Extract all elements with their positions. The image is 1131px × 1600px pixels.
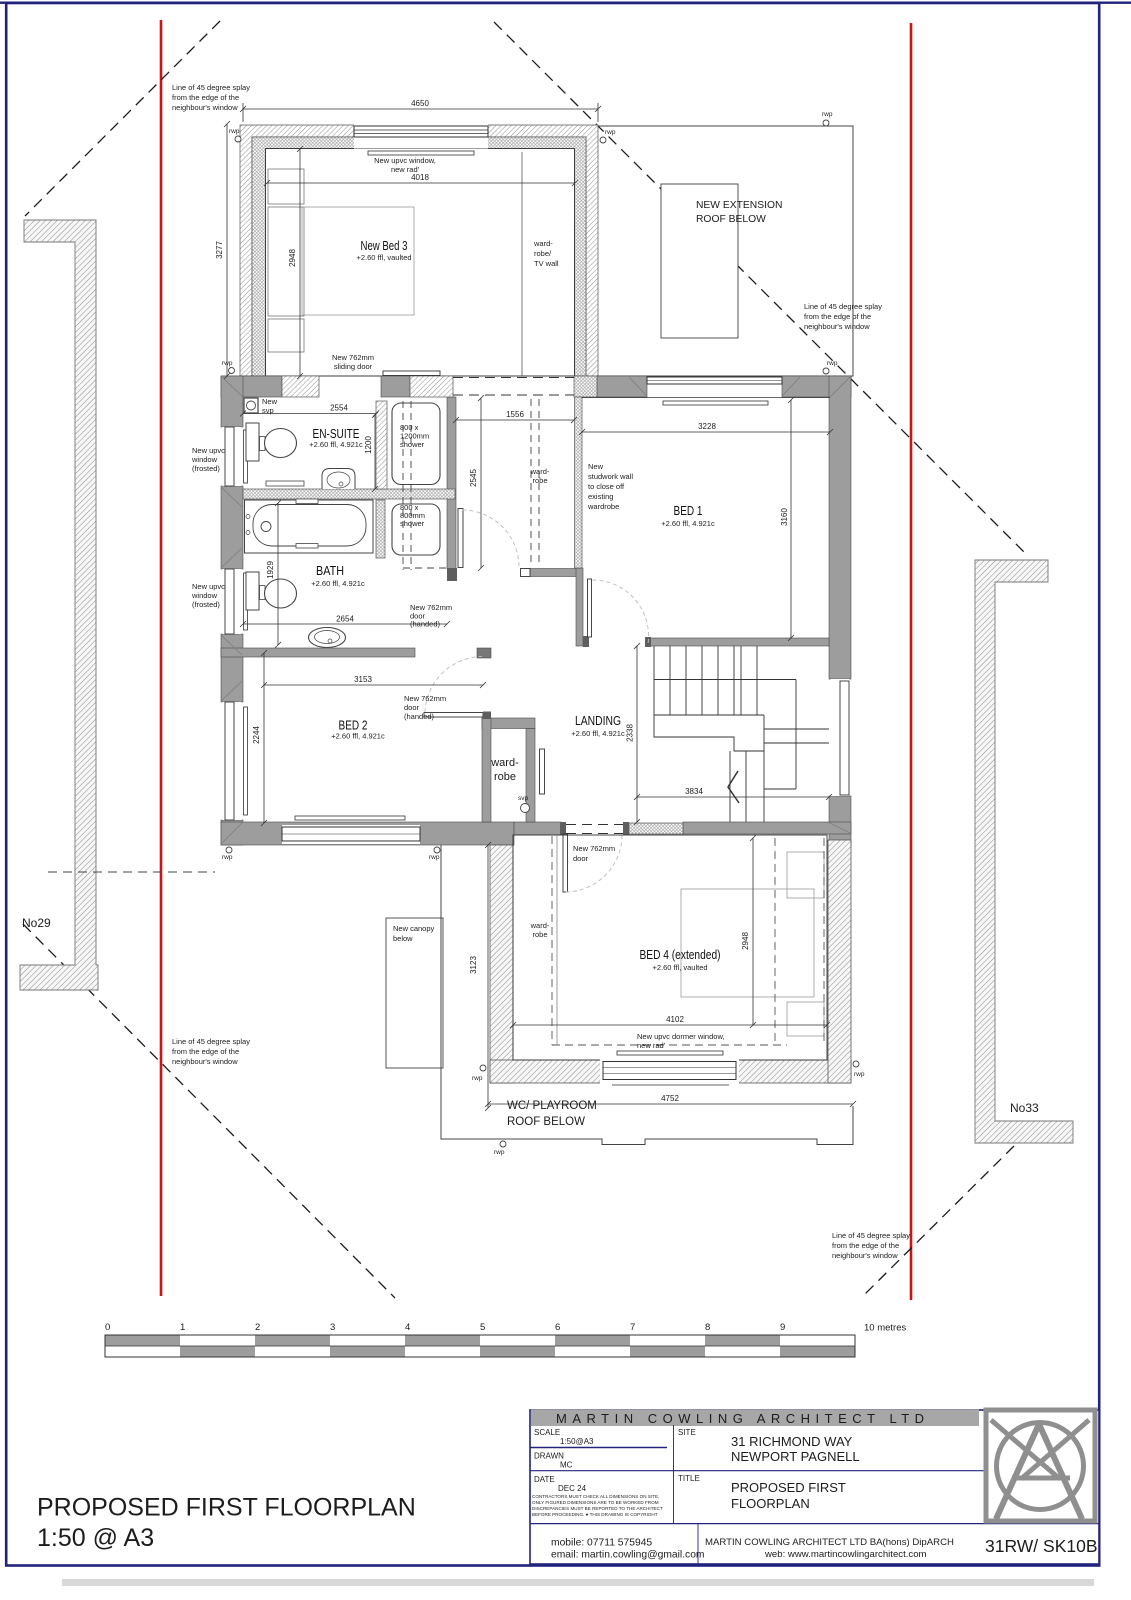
- svg-text:3: 3: [330, 1322, 335, 1333]
- svg-text:+2.60 ffl, 4.921c: +2.60 ffl, 4.921c: [331, 732, 385, 741]
- svg-text:No33: No33: [1010, 1101, 1039, 1115]
- svg-text:new rad': new rad': [637, 1041, 666, 1050]
- svg-text:(frosted): (frosted): [192, 464, 220, 473]
- svg-text:3160: 3160: [780, 508, 789, 526]
- svg-text:New Bed 3: New Bed 3: [361, 239, 408, 253]
- svg-text:New upvc: New upvc: [192, 582, 225, 591]
- svg-text:rwp: rwp: [222, 854, 233, 861]
- svg-text:rwp: rwp: [494, 1149, 505, 1156]
- svg-text:6: 6: [555, 1322, 560, 1333]
- svg-text:email: martin.cowling@gmail.c: email: martin.cowling@gmail.com: [551, 1550, 705, 1561]
- svg-text:No29: No29: [22, 916, 51, 930]
- svg-text:+2.60 ffl, 4.921c: +2.60 ffl, 4.921c: [661, 519, 715, 528]
- svg-text:robe/: robe/: [534, 249, 552, 258]
- svg-text:5: 5: [480, 1322, 485, 1333]
- svg-text:SCALE: SCALE: [534, 1428, 560, 1437]
- svg-text:PROPOSED FIRST: PROPOSED FIRST: [731, 1480, 846, 1495]
- svg-text:2: 2: [255, 1322, 260, 1333]
- svg-text:+2.60 ffl, vaulted: +2.60 ffl, vaulted: [356, 253, 411, 262]
- svg-text:New canopy: New canopy: [393, 924, 435, 933]
- svg-text:1:50 @ A3: 1:50 @ A3: [37, 1524, 154, 1552]
- svg-text:window: window: [191, 591, 218, 600]
- svg-text:ward-: ward-: [530, 467, 550, 476]
- svg-text:shower: shower: [400, 440, 425, 449]
- svg-text:4018: 4018: [411, 173, 429, 182]
- svg-text:4102: 4102: [666, 1015, 684, 1024]
- svg-text:BED 1: BED 1: [674, 504, 703, 518]
- svg-text:BATH: BATH: [316, 564, 344, 578]
- svg-text:1200: 1200: [364, 436, 373, 454]
- svg-text:3228: 3228: [698, 422, 716, 431]
- svg-text:Line of 45 degree splay: Line of 45 degree splay: [172, 1037, 250, 1046]
- svg-text:robe: robe: [532, 930, 547, 939]
- svg-text:window: window: [191, 455, 218, 464]
- svg-text:2545: 2545: [469, 469, 478, 487]
- svg-text:TV wall: TV wall: [534, 259, 559, 268]
- svg-text:(frosted): (frosted): [192, 600, 220, 609]
- svg-text:DRAWN: DRAWN: [534, 1452, 564, 1461]
- svg-text:(handed): (handed): [410, 620, 441, 629]
- svg-text:BED 4 (extended): BED 4 (extended): [640, 948, 721, 962]
- svg-text:New 762mm: New 762mm: [404, 694, 446, 703]
- svg-text:+2.60 ffl, vaulted: +2.60 ffl, vaulted: [652, 963, 707, 972]
- svg-text:New 762mm: New 762mm: [332, 353, 374, 362]
- svg-text:BEFORE PROCEEDING. ● THIS DRA: BEFORE PROCEEDING. ● THIS DRAWING IS COP…: [532, 1512, 658, 1517]
- svg-text:New: New: [588, 462, 604, 471]
- svg-text:sliding door: sliding door: [334, 362, 373, 371]
- svg-text:BED 2: BED 2: [339, 719, 368, 733]
- svg-text:2948: 2948: [288, 249, 297, 267]
- svg-text:SITE: SITE: [678, 1428, 696, 1437]
- svg-text:from the edge of the: from the edge of the: [172, 1047, 239, 1056]
- svg-text:9: 9: [780, 1322, 785, 1333]
- svg-text:to close off: to close off: [588, 482, 625, 491]
- svg-text:ward-: ward-: [490, 757, 519, 769]
- svg-text:Line of 45 degree splay: Line of 45 degree splay: [832, 1231, 910, 1240]
- svg-text:(handed): (handed): [404, 712, 435, 721]
- svg-text:ward-: ward-: [533, 239, 553, 248]
- svg-text:svp: svp: [518, 795, 529, 802]
- svg-text:ONLY FIGURED DIMENSIONS ARE TO: ONLY FIGURED DIMENSIONS ARE TO BE WORKED…: [532, 1500, 659, 1505]
- svg-text:MARTIN COWLING ARCHITECT LTD: MARTIN COWLING ARCHITECT LTD: [556, 1411, 930, 1426]
- svg-text:2948: 2948: [741, 932, 750, 950]
- svg-text:neighbour's window: neighbour's window: [804, 322, 870, 331]
- svg-text:New: New: [262, 397, 278, 406]
- svg-text:MC: MC: [560, 1461, 573, 1470]
- svg-text:New 762mm: New 762mm: [573, 844, 615, 853]
- svg-text:rwp: rwp: [222, 360, 233, 367]
- svg-text:web: www.martincowlingarchitec: web: www.martincowlingarchitect.com: [764, 1549, 927, 1560]
- svg-text:LANDING: LANDING: [575, 714, 621, 728]
- svg-text:2554: 2554: [330, 404, 348, 413]
- svg-text:from the edge of the: from the edge of the: [172, 93, 239, 102]
- svg-text:CONTRACTORS MUST CHECK ALL DIM: CONTRACTORS MUST CHECK ALL DIMENSIONS ON…: [532, 1494, 659, 1499]
- svg-text:0: 0: [105, 1322, 110, 1333]
- svg-text:door: door: [404, 703, 420, 712]
- svg-text:DISCREPANCIES MUST BE REPORTED: DISCREPANCIES MUST BE REPORTED TO THE AR…: [532, 1506, 663, 1511]
- svg-text:4650: 4650: [411, 99, 429, 108]
- svg-text:neighbour's window: neighbour's window: [832, 1251, 898, 1260]
- svg-text:1929: 1929: [266, 561, 275, 579]
- svg-text:from the edge of the: from the edge of the: [832, 1241, 899, 1250]
- svg-text:Line of 45 degree splay: Line of 45 degree splay: [172, 83, 250, 92]
- svg-text:31 RICHMOND WAY: 31 RICHMOND WAY: [731, 1434, 853, 1449]
- svg-text:from the edge of the: from the edge of the: [804, 312, 871, 321]
- svg-text:rwp: rwp: [229, 128, 240, 135]
- svg-text:neighbour's window: neighbour's window: [172, 103, 238, 112]
- svg-text:mobile: 07711 575945: mobile: 07711 575945: [551, 1538, 652, 1549]
- svg-text:4752: 4752: [661, 1094, 679, 1103]
- svg-text:rwp: rwp: [429, 854, 440, 861]
- svg-text:neighbour's window: neighbour's window: [172, 1057, 238, 1066]
- svg-text:rwp: rwp: [827, 360, 838, 367]
- svg-text:7: 7: [630, 1322, 635, 1333]
- svg-text:New upvc dormer window,: New upvc dormer window,: [637, 1032, 725, 1041]
- svg-text:4: 4: [405, 1322, 410, 1333]
- svg-text:1556: 1556: [506, 410, 524, 419]
- svg-text:2654: 2654: [336, 615, 354, 624]
- svg-text:ROOF BELOW: ROOF BELOW: [696, 214, 766, 225]
- svg-text:rwp: rwp: [605, 129, 616, 136]
- svg-text:3277: 3277: [215, 241, 224, 259]
- svg-text:wardrobe: wardrobe: [587, 502, 619, 511]
- svg-text:31RW/ SK10B: 31RW/ SK10B: [985, 1536, 1098, 1556]
- svg-text:2244: 2244: [252, 726, 261, 744]
- svg-text:existing: existing: [588, 492, 613, 501]
- svg-text:DEC 24: DEC 24: [558, 1484, 587, 1493]
- svg-text:ROOF BELOW: ROOF BELOW: [507, 1116, 585, 1128]
- svg-text:+2.60 ffl, 4.921c: +2.60 ffl, 4.921c: [311, 579, 365, 588]
- svg-text:3123: 3123: [469, 956, 478, 974]
- svg-text:New upvc window,: New upvc window,: [374, 156, 436, 165]
- svg-text:Line of 45 degree splay: Line of 45 degree splay: [804, 302, 882, 311]
- svg-text:svp: svp: [262, 406, 274, 415]
- svg-text:+2.60 ffl, 4.921c: +2.60 ffl, 4.921c: [309, 440, 363, 449]
- svg-text:8: 8: [705, 1322, 710, 1333]
- svg-text:1:50@A3: 1:50@A3: [560, 1437, 594, 1446]
- svg-text:+2.60 ffl, 4.921c: +2.60 ffl, 4.921c: [571, 729, 625, 738]
- svg-text:New upvc: New upvc: [192, 446, 225, 455]
- svg-text:1: 1: [180, 1322, 185, 1333]
- svg-text:EN-SUITE: EN-SUITE: [313, 427, 360, 441]
- svg-text:rwp: rwp: [854, 1071, 865, 1078]
- svg-text:TITLE: TITLE: [678, 1474, 700, 1483]
- svg-text:rwp: rwp: [472, 1075, 483, 1082]
- svg-text:3153: 3153: [354, 675, 372, 684]
- svg-text:NEW EXTENSION: NEW EXTENSION: [696, 200, 782, 211]
- svg-text:shower: shower: [400, 519, 425, 528]
- svg-text:NEWPORT PAGNELL: NEWPORT PAGNELL: [731, 1449, 860, 1464]
- svg-text:rwp: rwp: [822, 111, 833, 118]
- svg-text:new rad': new rad': [391, 165, 420, 174]
- svg-text:ward-: ward-: [530, 921, 550, 930]
- svg-text:3834: 3834: [685, 787, 703, 796]
- svg-text:FLOORPLAN: FLOORPLAN: [731, 1496, 810, 1511]
- svg-text:below: below: [393, 934, 413, 943]
- svg-text:PROPOSED FIRST FLOORPLAN: PROPOSED FIRST FLOORPLAN: [37, 1494, 416, 1522]
- svg-text:robe: robe: [532, 476, 547, 485]
- svg-text:2338: 2338: [626, 724, 635, 742]
- svg-text:WC/ PLAYROOM: WC/ PLAYROOM: [507, 1100, 597, 1112]
- svg-text:door: door: [573, 854, 589, 863]
- svg-text:10 metres: 10 metres: [864, 1323, 906, 1334]
- svg-text:robe: robe: [494, 771, 516, 783]
- svg-text:DATE: DATE: [534, 1475, 555, 1484]
- svg-text:MARTIN COWLING ARCHITECT LTD B: MARTIN COWLING ARCHITECT LTD BA(hons) Di…: [705, 1537, 954, 1548]
- svg-text:studwork wall: studwork wall: [588, 472, 633, 481]
